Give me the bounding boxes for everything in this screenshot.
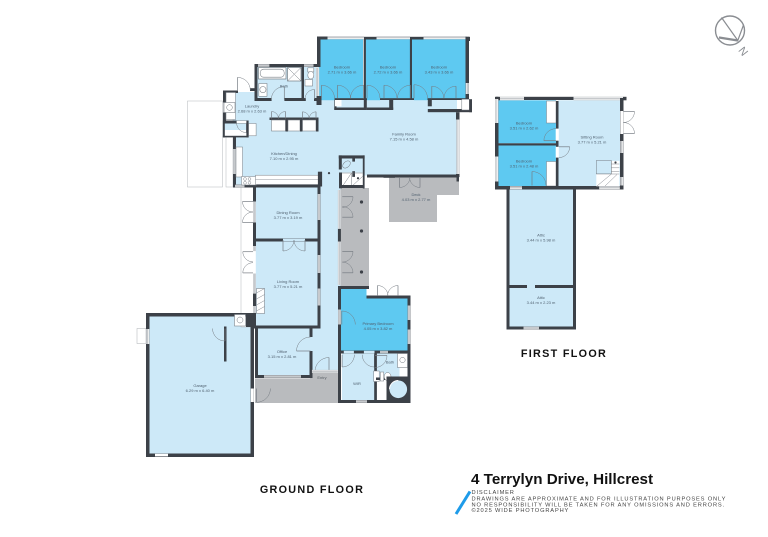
svg-text:GROUND FLOOR: GROUND FLOOR bbox=[260, 484, 364, 496]
svg-text:3.77 m x 3.19 m: 3.77 m x 3.19 m bbox=[274, 215, 303, 220]
svg-text:4.05 m x 3.82 m: 4.05 m x 3.82 m bbox=[364, 326, 393, 331]
svg-text:6.29 m x 6.40 m: 6.29 m x 6.40 m bbox=[186, 388, 215, 393]
svg-text:3.44 m x 5.98 m: 3.44 m x 5.98 m bbox=[527, 238, 556, 243]
svg-text:7.15 m x 4.58 m: 7.15 m x 4.58 m bbox=[390, 137, 419, 142]
svg-text:3.77 m x 5.21 m: 3.77 m x 5.21 m bbox=[578, 140, 607, 145]
svg-text:3.51 m x 2.62 m: 3.51 m x 2.62 m bbox=[510, 126, 539, 131]
svg-text:Entry: Entry bbox=[317, 375, 326, 380]
svg-text:4 Terrylyn Drive, Hillcrest: 4 Terrylyn Drive, Hillcrest bbox=[471, 471, 653, 488]
svg-text:4.03 m x 2.77 m: 4.03 m x 2.77 m bbox=[402, 197, 431, 202]
svg-text:3.44 m x 2.23 m: 3.44 m x 2.23 m bbox=[527, 300, 556, 305]
svg-text:DISCLAIMER: DISCLAIMER bbox=[472, 490, 515, 496]
svg-text:2.71 m x 3.66 m: 2.71 m x 3.66 m bbox=[328, 70, 357, 75]
svg-text:3.51 m x 2.48 m: 3.51 m x 2.48 m bbox=[510, 164, 539, 169]
svg-text:WIR: WIR bbox=[353, 381, 361, 386]
svg-text:Bath: Bath bbox=[386, 360, 394, 365]
svg-text:FIRST FLOOR: FIRST FLOOR bbox=[521, 348, 607, 360]
svg-text:3.15 m x 2.81 m: 3.15 m x 2.81 m bbox=[268, 354, 297, 359]
svg-text:2.68 m x 2.63 m: 2.68 m x 2.63 m bbox=[238, 109, 267, 114]
svg-text:2.72 m x 3.66 m: 2.72 m x 3.66 m bbox=[374, 70, 403, 75]
svg-text:3.43 m x 3.66 m: 3.43 m x 3.66 m bbox=[425, 70, 454, 75]
svg-text:Bath: Bath bbox=[280, 84, 288, 89]
svg-text:7.10 m x 2.95 m: 7.10 m x 2.95 m bbox=[270, 156, 299, 161]
svg-text:©2025 WIDE PHOTOGRAPHY: ©2025 WIDE PHOTOGRAPHY bbox=[472, 507, 570, 514]
svg-text:3.77 m x 5.21 m: 3.77 m x 5.21 m bbox=[274, 284, 303, 289]
